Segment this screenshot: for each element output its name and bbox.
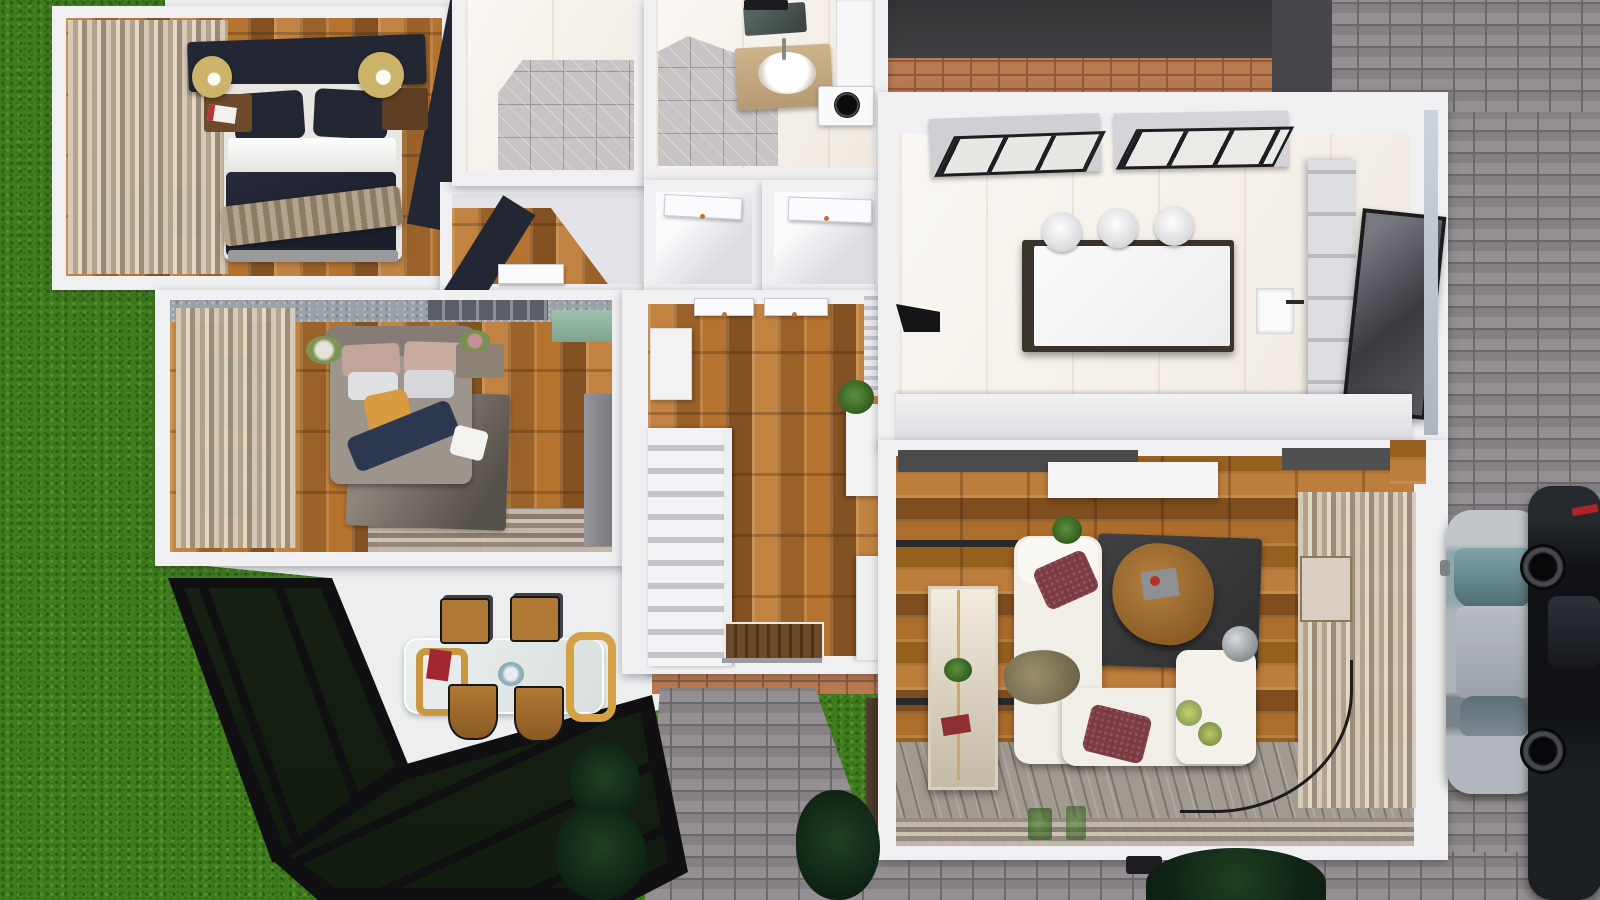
dark-wall-block: [1272, 0, 1332, 106]
bed2-flowers: [460, 330, 490, 352]
silver-car-rear-glass: [1460, 696, 1528, 736]
carpet-window-glint-1: [1028, 808, 1052, 840]
skylight-left-glass: [934, 131, 1106, 177]
bar-stool-1: [1042, 212, 1082, 252]
shrub-left-2: [556, 806, 646, 900]
wood-slat-block: [1390, 440, 1426, 484]
curio-center-post: [957, 590, 960, 780]
bedroom2-curtains-left: [176, 308, 296, 548]
hall-door1-handle: [722, 312, 727, 317]
closet-right-door: [788, 197, 873, 224]
towel-rail: [744, 0, 788, 10]
tray-candle: [1150, 576, 1160, 586]
tv-console: [1048, 462, 1218, 498]
gray-wardrobe: [584, 394, 612, 546]
table-frame-right: [566, 632, 616, 722]
console-table: [846, 404, 882, 496]
bathroom-cabinets: [836, 0, 875, 88]
dining-vase: [498, 662, 524, 686]
chair-top-1: [440, 598, 490, 644]
window-rail-1: [896, 540, 1018, 547]
tv-cabinet-dark-2: [1282, 448, 1394, 470]
console-plant: [838, 380, 874, 414]
shower-tile-floor: [498, 60, 634, 170]
roof-edge-band: [888, 0, 1280, 62]
remote-tray: [1140, 568, 1180, 601]
carpet-window-glint-2: [1066, 806, 1086, 840]
gold-lamp-right: [358, 52, 404, 98]
skylight-right-glass: [1116, 126, 1295, 169]
black-car-wheel-front: [1520, 544, 1566, 590]
sphere-lamp: [1222, 626, 1258, 662]
silver-car-roof: [1456, 606, 1532, 698]
faucet: [782, 38, 786, 60]
black-car-glass: [1548, 596, 1600, 668]
plant-stand-leaves-1: [1176, 700, 1202, 726]
sofa-top-plant: [1052, 516, 1082, 544]
vestibule-door: [498, 264, 564, 284]
hall-door2-handle: [792, 312, 797, 317]
chair-bottom-1: [448, 684, 498, 740]
chair-bottom-2: [514, 686, 564, 742]
front-door-line: [722, 658, 822, 663]
red-runner: [426, 649, 452, 682]
doormat: [724, 622, 824, 660]
bedroom2-window-blinds: [428, 300, 548, 320]
floorplan-render: [0, 0, 1600, 900]
curio-plant: [944, 658, 972, 682]
living-bottom-curtain: [896, 818, 1414, 846]
bar-stool-3: [1154, 206, 1194, 246]
teal-cabinet: [552, 310, 612, 342]
hall-wall-cabinet: [650, 328, 692, 400]
black-car-wheel-rear: [1520, 728, 1566, 774]
right-window: [1424, 110, 1438, 435]
staircase: [648, 428, 724, 666]
closet-left-handle: [700, 214, 705, 219]
bed2-flowers-left: [306, 336, 342, 364]
silver-car-mirror-left: [1440, 560, 1450, 576]
niche-faucet: [1286, 300, 1304, 304]
gold-lamp-left: [192, 56, 232, 98]
shrub-right-1: [796, 790, 880, 900]
bed2-pillow-white-2: [404, 370, 454, 398]
closet-right-handle: [824, 216, 829, 221]
curio-cabinet: [928, 586, 998, 790]
bed1-white-sheet: [228, 138, 396, 176]
curtain-window: [1300, 556, 1352, 622]
kitchen-counter: [896, 394, 1412, 444]
island-top: [1034, 246, 1230, 346]
bar-stool-2: [1098, 208, 1138, 248]
washer-drum: [834, 92, 860, 118]
plant-stand-leaves-2: [1198, 722, 1222, 746]
chair-top-2: [510, 596, 560, 642]
bed1-foot-frame: [228, 250, 398, 262]
wall-niche: [1256, 288, 1294, 334]
oval-sink: [758, 52, 816, 94]
